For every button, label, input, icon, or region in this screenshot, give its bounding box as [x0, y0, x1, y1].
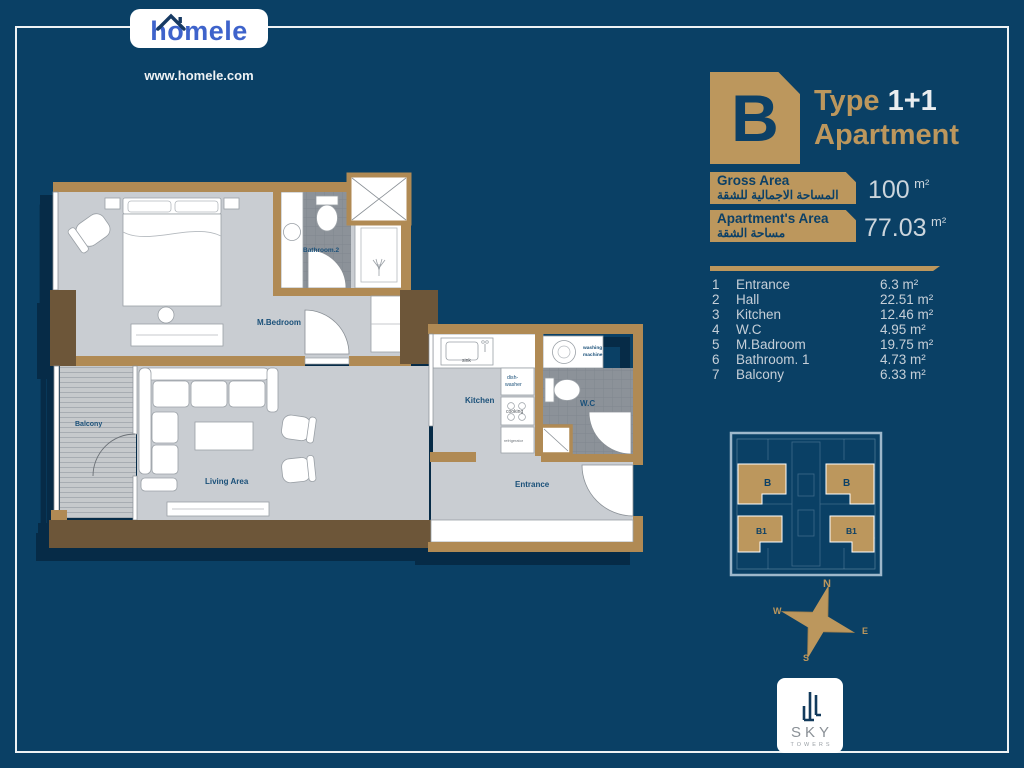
svg-text:washer: washer	[505, 382, 522, 388]
floor-plan: M.Bedroom Bathroom.2	[45, 172, 645, 572]
compass-star-icon	[771, 576, 865, 669]
unit-label: B	[764, 478, 771, 489]
room-living: Balcony Living Area	[49, 366, 431, 548]
type-title: Type 1+1 Apartment	[814, 84, 959, 152]
cooking-label: cooking	[506, 409, 523, 415]
chair-icon	[281, 455, 317, 484]
coffee-table-icon	[195, 422, 253, 450]
bedroom-label: M.Bedroom	[257, 318, 301, 327]
apartment-area-value: 77.03 m²	[864, 214, 946, 243]
compass-s: S	[803, 653, 809, 663]
toilet-icon	[316, 196, 338, 231]
type-word: Type	[814, 85, 880, 117]
wc-label: W.C	[580, 399, 595, 408]
table-row: 5M.Badroom19.75 m²	[712, 337, 944, 352]
shaft-icon	[349, 175, 409, 223]
apartment-area-label-ar: مساحة الشقة	[717, 226, 856, 240]
table-row: 4W.C4.95 m²	[712, 322, 944, 337]
living-label: Living Area	[205, 477, 249, 486]
entry-cabinet-icon	[431, 520, 633, 542]
sky-towers-logo: SKY TOWERS	[777, 678, 843, 753]
kitchen-label: Kitchen	[465, 396, 494, 405]
wc-toilet-icon	[545, 378, 580, 402]
room-bedroom: M.Bedroom Bathroom.2	[50, 175, 438, 366]
apartment-area-label-en: Apartment's Area	[717, 212, 856, 226]
unit-label: B1	[846, 526, 857, 536]
stool-icon	[158, 307, 174, 323]
washing-machine-icon	[543, 336, 603, 368]
developer-name: SKY	[791, 726, 833, 740]
washing-label: washing	[582, 345, 602, 351]
dishwasher-label: dish-	[507, 375, 519, 381]
unit-label: B1	[756, 526, 767, 536]
balcony-label: Balcony	[75, 421, 102, 428]
apartment-area-banner: Apartment's Area مساحة الشقة	[710, 210, 856, 242]
balcony-floor	[60, 366, 136, 518]
refrigerator-label: refrigerator	[504, 438, 524, 443]
shower-icon	[355, 218, 403, 288]
compass-rose: N E S W	[765, 576, 875, 671]
gross-area-label-ar: المساحة الاجمالية للشقة	[717, 188, 856, 202]
table-row: 7Balcony6.33 m²	[712, 367, 944, 382]
unit-b-top-left	[738, 464, 786, 504]
balcony-window	[54, 366, 59, 516]
type-value: 1+1	[888, 85, 937, 117]
bedroom-window	[53, 192, 58, 290]
gross-area-label-en: Gross Area	[717, 174, 856, 188]
compass-n: N	[823, 578, 831, 590]
building-key-plan: B B B1 B1	[728, 430, 884, 578]
type-letter: B	[731, 85, 779, 151]
bed-icon	[105, 198, 239, 306]
developer-sub: TOWERS	[790, 742, 832, 748]
type-subtitle: Apartment	[814, 118, 959, 152]
gross-area-value: 100 m²	[868, 176, 929, 205]
unit-label: B	[843, 478, 850, 489]
house-roof-icon	[156, 13, 186, 31]
compass-w: W	[773, 606, 782, 616]
flyer-page: homele www.homele.com B Type 1+1 Apartme…	[0, 0, 1024, 768]
table-row: 2Hall22.51 m²	[712, 292, 944, 307]
website-url[interactable]: www.homele.com	[118, 68, 280, 83]
entrance-label: Entrance	[515, 480, 550, 489]
list-divider	[710, 266, 940, 271]
compass-e: E	[862, 626, 868, 636]
towers-icon	[793, 690, 827, 726]
bath-sink-icon	[284, 224, 301, 241]
bathroom2-label: Bathroom.2	[303, 247, 340, 254]
gross-area-banner: Gross Area المساحة الاجمالية للشقة	[710, 172, 856, 204]
room-schedule: 1Entrance6.3 m² 2Hall22.51 m² 3Kitchen12…	[712, 277, 944, 382]
homele-logo[interactable]: homele	[130, 9, 268, 48]
sink-label: sink	[462, 358, 471, 364]
type-letter-badge: B	[710, 72, 800, 164]
table-row: 6Bathroom. 14.73 m²	[712, 352, 944, 367]
room-kitchen-wc-entrance: sink dish- washer cooking refrigerator w…	[428, 324, 643, 552]
table-row: 1Entrance6.3 m²	[712, 277, 944, 292]
svg-text:machine: machine	[583, 352, 603, 358]
table-row: 3Kitchen12.46 m²	[712, 307, 944, 322]
small-shaft-icon	[541, 426, 571, 454]
hall-doorway	[305, 358, 349, 364]
